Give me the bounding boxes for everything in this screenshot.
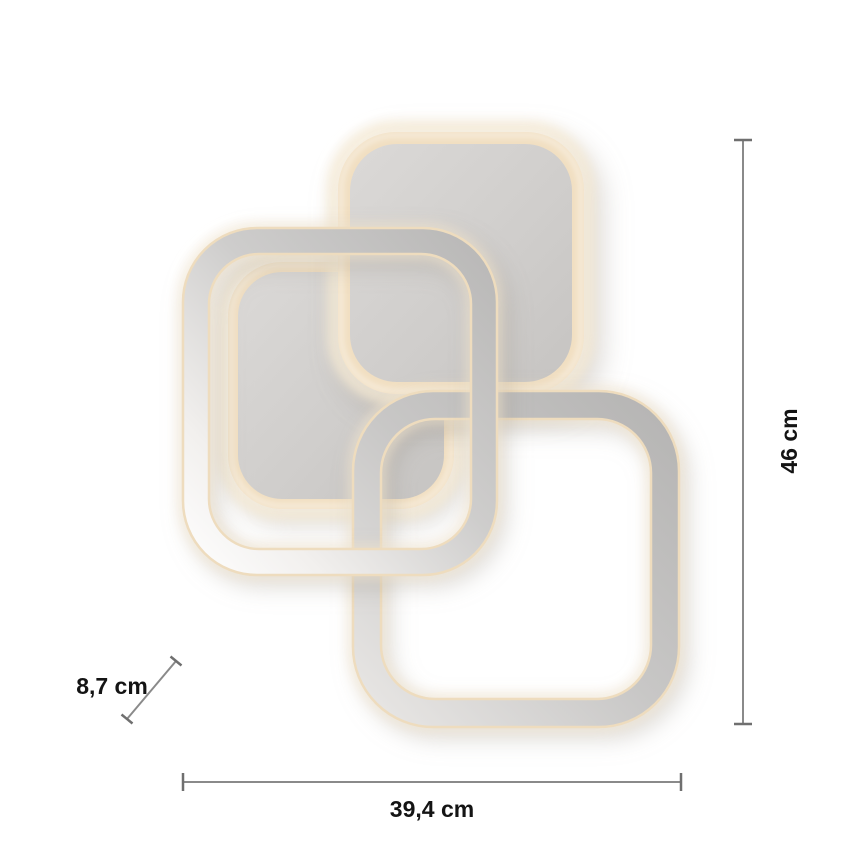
height-dimension-line — [734, 140, 752, 724]
width-dimension-label: 39,4 cm — [390, 796, 474, 822]
depth-dimension-label: 8,7 cm — [76, 673, 148, 699]
dimension-diagram: 46 cm 39,4 cm 8,7 cm — [0, 0, 865, 865]
lamp-illustration — [183, 128, 679, 727]
width-dimension-line — [183, 773, 681, 791]
height-dimension-label: 46 cm — [776, 408, 802, 473]
lamp-dimension-drawing: 46 cm 39,4 cm 8,7 cm — [0, 0, 865, 865]
